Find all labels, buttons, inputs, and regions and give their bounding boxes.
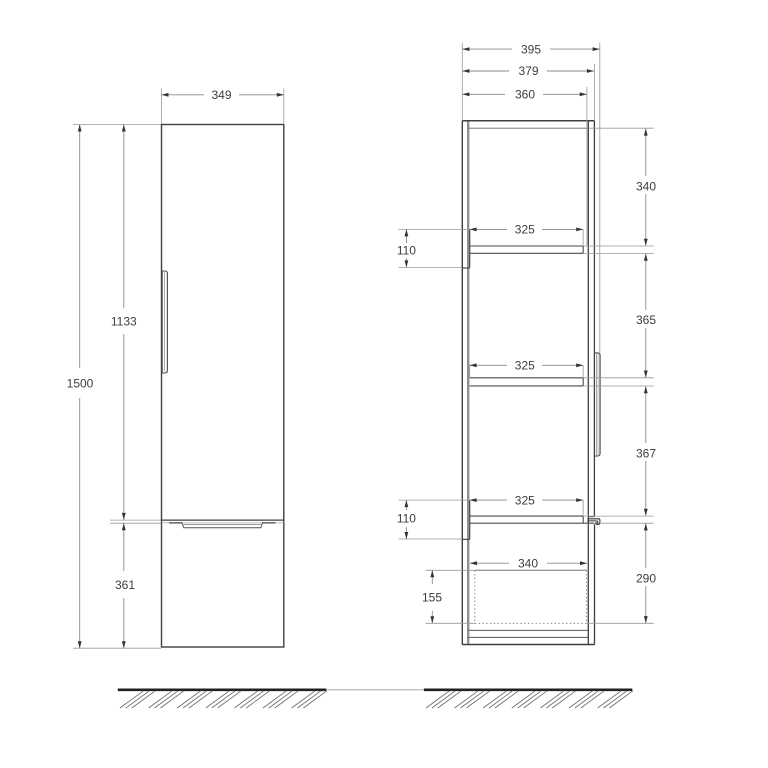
svg-text:349: 349 [211,88,231,102]
svg-text:361: 361 [115,578,135,592]
svg-text:379: 379 [518,64,538,78]
svg-text:367: 367 [636,446,656,460]
svg-text:155: 155 [422,591,442,605]
svg-text:340: 340 [636,179,656,193]
svg-text:365: 365 [636,313,656,327]
svg-text:110: 110 [397,244,416,258]
svg-text:290: 290 [636,572,656,586]
svg-text:395: 395 [521,42,541,56]
svg-text:325: 325 [515,359,535,373]
svg-text:340: 340 [518,556,538,570]
svg-text:1133: 1133 [111,315,137,329]
svg-text:1500: 1500 [67,377,94,391]
svg-text:325: 325 [515,223,535,237]
svg-text:325: 325 [515,493,535,507]
svg-text:110: 110 [397,512,416,526]
svg-text:360: 360 [515,88,535,102]
